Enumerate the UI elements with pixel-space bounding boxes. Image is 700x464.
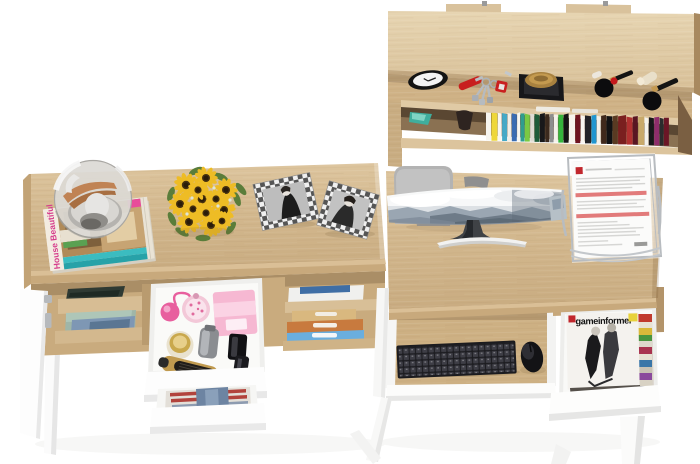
svg-text:gameinformer: gameinformer — [575, 315, 632, 326]
